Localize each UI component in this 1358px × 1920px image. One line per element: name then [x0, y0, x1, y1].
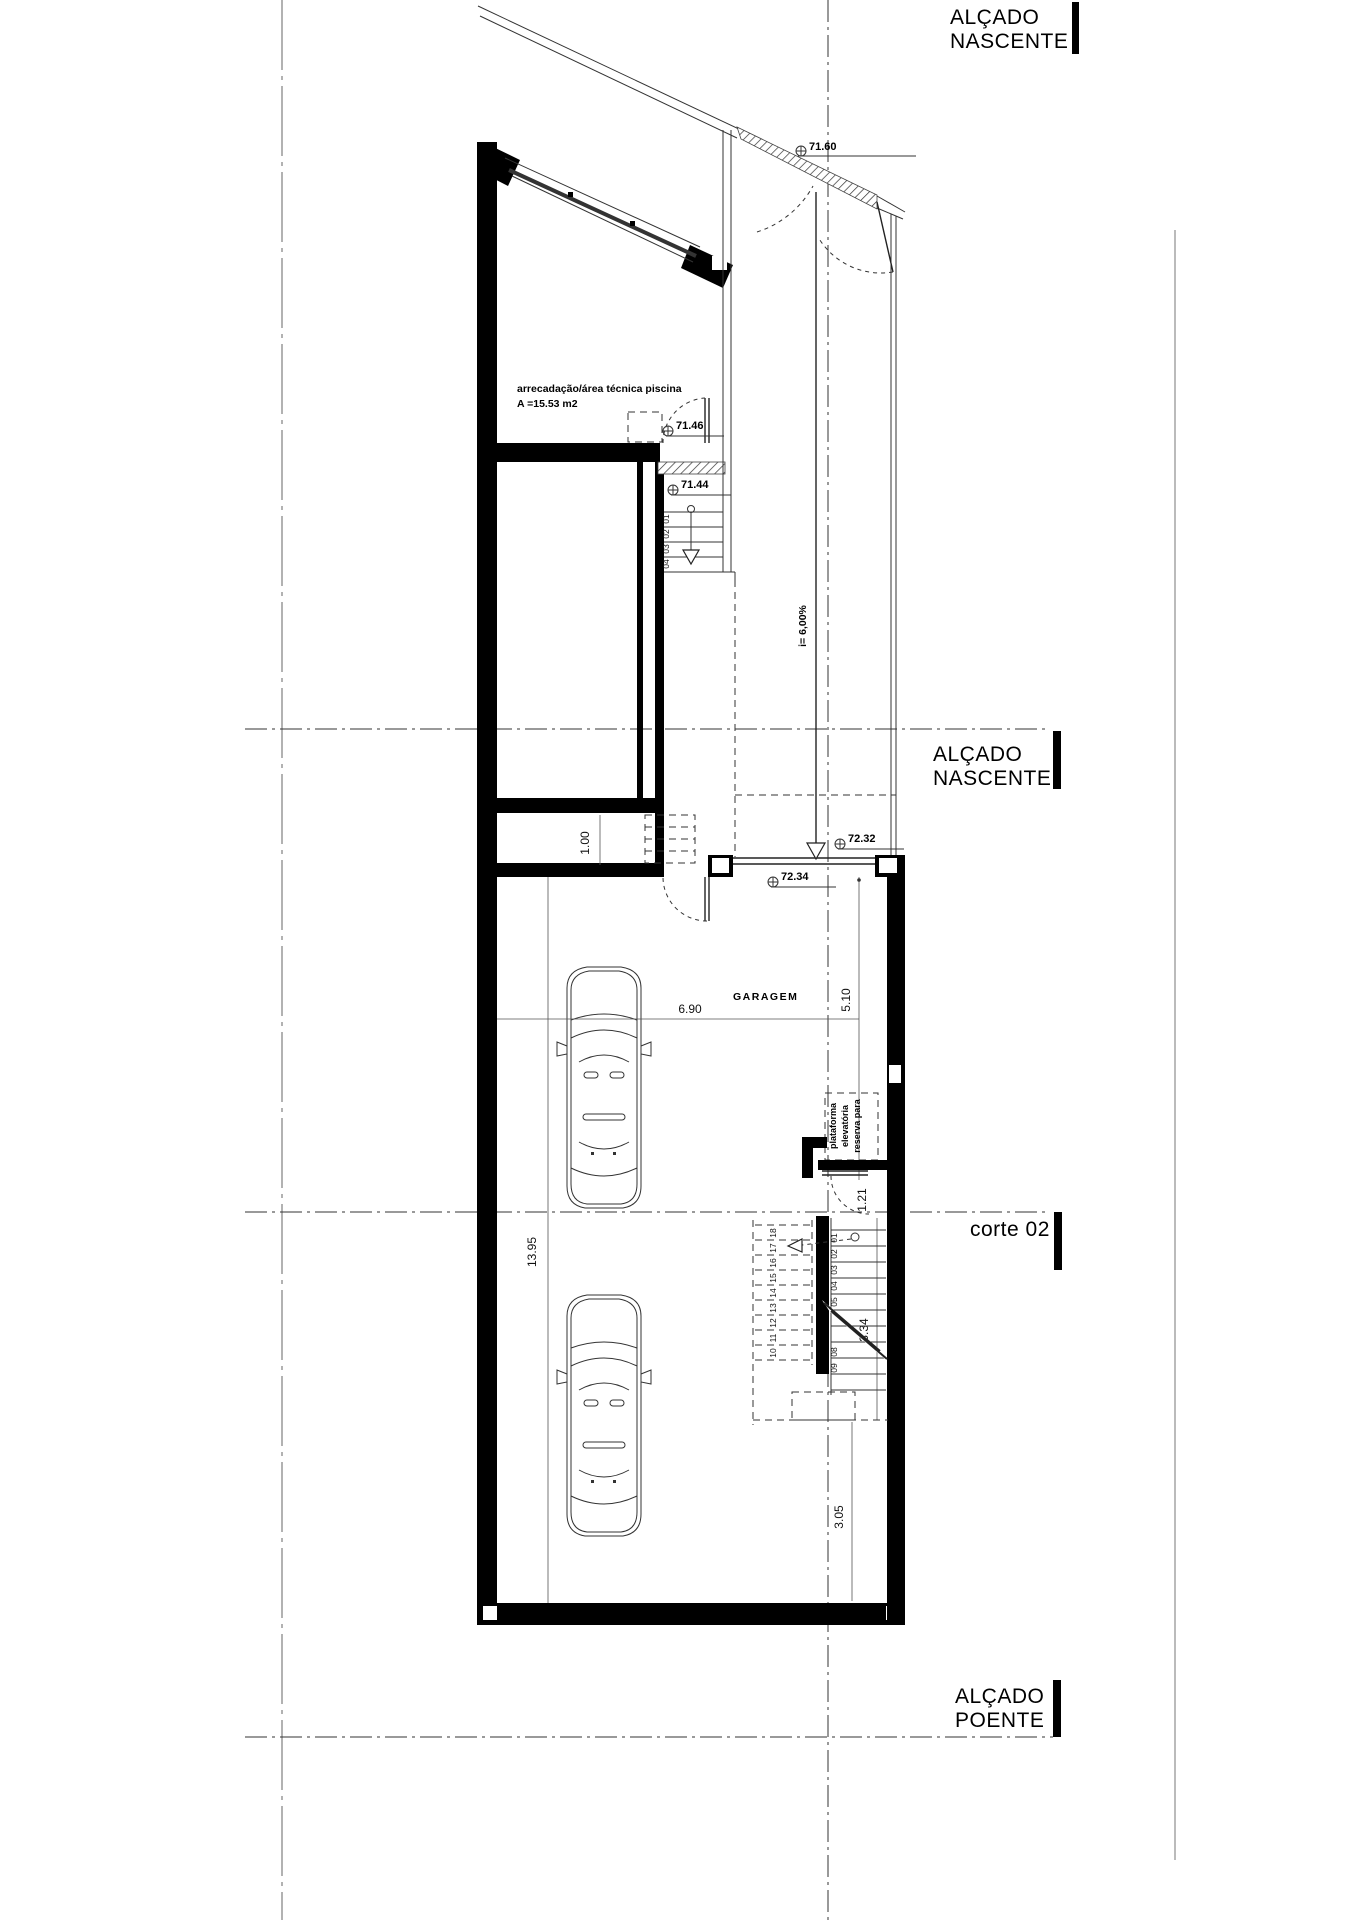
storage-zone	[477, 130, 896, 877]
floor-plan-sheet: 01 02 03 04 i= 6,00% 71.60	[0, 0, 1358, 1920]
stair-number: 05	[829, 1297, 839, 1307]
storage-label-line2: A =15.53 m2	[517, 398, 578, 410]
floor-plan-drawing: 01 02 03 04 i= 6,00% 71.60	[0, 0, 1358, 1920]
label-alcado-nascente-top: ALÇADO NASCENTE	[950, 2, 1079, 54]
label-text: corte 02	[970, 1218, 1050, 1241]
room-north-wall	[494, 443, 660, 462]
lift-platform: plataforma elevatória reserva para	[802, 1093, 887, 1214]
level-value: 72.34	[781, 871, 809, 883]
stair-arrow-start	[688, 506, 695, 513]
stair-number: 03	[661, 544, 671, 554]
platform-south-wall	[818, 1160, 887, 1170]
label-alcado-nascente-mid: ALÇADO NASCENTE	[933, 731, 1061, 790]
stair-number: 18	[768, 1228, 778, 1238]
level-72-32: 72.32	[835, 833, 904, 849]
ramp: i= 6,00%	[797, 192, 825, 859]
stair-number: 08	[829, 1347, 839, 1357]
level-71-44: 71.44	[668, 479, 731, 495]
stair-number: 09	[829, 1363, 839, 1373]
level-72-34: 72.34	[768, 871, 836, 887]
gate-swing-arc-2	[757, 186, 813, 232]
dim-back: 3.05	[832, 1505, 846, 1529]
gate-swing-arc	[818, 237, 893, 273]
stair-number: 11	[768, 1333, 778, 1342]
level-value: 72.32	[848, 833, 876, 845]
stair-direction-arrowhead	[788, 1239, 802, 1252]
upper-stairs: 01 02 03 04	[661, 506, 723, 573]
storage-label-line1: arrecadação/área técnica piscina	[517, 383, 682, 395]
label-bar	[1053, 1680, 1061, 1737]
ramp-arrowhead	[807, 843, 825, 859]
room-east-wall	[637, 443, 643, 798]
level-71-46: 71.46	[663, 420, 724, 436]
stair-number: 17	[768, 1243, 778, 1253]
label-bar	[1054, 1212, 1062, 1270]
stair-spine-wall	[816, 1216, 829, 1374]
glass-wall-outer-line	[505, 158, 700, 247]
room-south-wall	[494, 798, 655, 813]
stair-number: 15	[768, 1273, 778, 1283]
south-wall	[477, 1603, 905, 1625]
dim-landing: 1.00	[578, 831, 592, 855]
stair-number: 04	[829, 1281, 839, 1291]
label-bar	[1072, 2, 1079, 54]
platform-west-wall	[802, 1137, 813, 1178]
stair-number: 02	[829, 1249, 839, 1259]
label-text: ALÇADO	[950, 6, 1039, 29]
stair-number: 14	[768, 1288, 778, 1298]
level-value: 71.44	[681, 479, 709, 491]
dim-door: 1.21	[855, 1188, 869, 1212]
door-71-46-dashed	[628, 412, 662, 442]
stair-number: 16	[768, 1258, 778, 1268]
label-bar	[1053, 731, 1061, 789]
site-boundary-lines	[245, 0, 1175, 1920]
stair-solid-treads	[831, 1218, 886, 1395]
stair-number: 01	[661, 514, 671, 524]
label-text: POENTE	[955, 1709, 1044, 1732]
level-value: 71.46	[676, 420, 704, 432]
stair-direction-start	[851, 1233, 859, 1241]
building-walls	[477, 142, 905, 1625]
glass-wall-inner-line	[512, 176, 693, 262]
label-text: NASCENTE	[933, 767, 1051, 790]
stair-number: 13	[768, 1303, 778, 1313]
level-71-60: 71.60	[796, 141, 916, 156]
label-text: NASCENTE	[950, 30, 1068, 53]
garage-north-wall	[494, 863, 664, 877]
label-corte-02: corte 02	[970, 1212, 1062, 1270]
car-bottom	[557, 1295, 651, 1536]
storage-room-label: arrecadação/área técnica piscina A =15.5…	[517, 383, 682, 410]
stair-number: 03	[829, 1265, 839, 1275]
sheet-labels: ALÇADO NASCENTE ALÇADO NASCENTE corte 02…	[933, 2, 1079, 1737]
stair-number: 10	[768, 1348, 778, 1358]
dim-garage-length: 13.95	[525, 1237, 539, 1267]
door-swing-garage	[663, 877, 707, 921]
dashed-stair-above	[645, 815, 695, 863]
platform-label-3: reserva para	[852, 1098, 862, 1153]
stair-number: 12	[768, 1318, 778, 1328]
label-text: ALÇADO	[955, 1685, 1044, 1708]
east-wall	[887, 855, 905, 1625]
dim-entry-depth: 5.10	[839, 988, 853, 1012]
ramp-slope-label: i= 6,00%	[797, 604, 809, 646]
stair-number: 02	[661, 529, 671, 539]
dimensions: 6.90 5.10 13.95 1.00 1.21 3.34 3.05	[497, 815, 877, 1601]
glazing-line	[509, 170, 696, 256]
car-top	[557, 967, 651, 1208]
west-wall	[477, 142, 497, 1625]
platform-label-1: plataforma	[828, 1102, 838, 1149]
stair-number: 04	[661, 559, 671, 569]
existing-wall-hatch	[737, 127, 877, 209]
stair-dashed-treads	[753, 1220, 812, 1425]
garage-label: GARAGEM	[733, 991, 798, 1003]
platform-label-2: elevatória	[840, 1104, 850, 1147]
label-alcado-poente: ALÇADO POENTE	[955, 1680, 1061, 1737]
stair-landing-dashed	[792, 1392, 855, 1420]
stair-top-hatch-wall	[658, 462, 725, 474]
dim-garage-width: 6.90	[678, 1002, 702, 1016]
level-value: 71.60	[809, 141, 837, 153]
label-text: ALÇADO	[933, 743, 1022, 766]
